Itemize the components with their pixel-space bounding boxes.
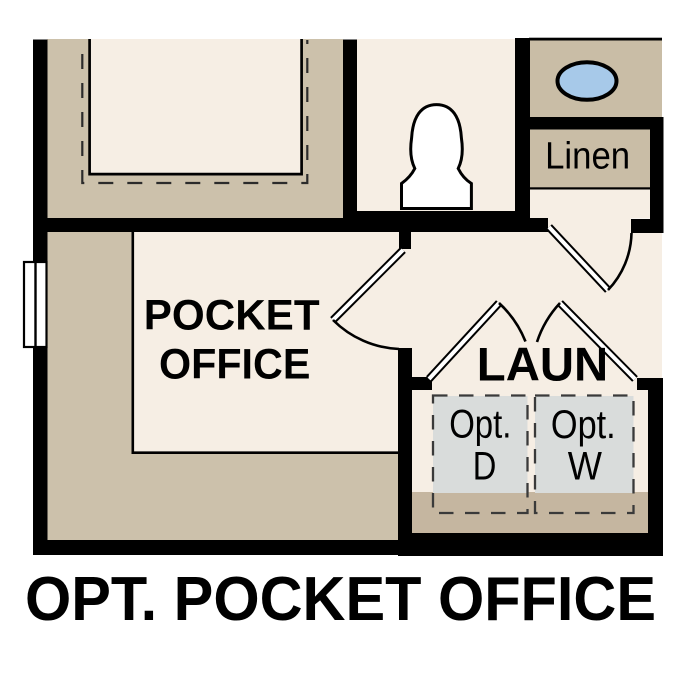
svg-text:OFFICE: OFFICE <box>159 341 310 388</box>
svg-text:LAUN: LAUN <box>477 339 608 392</box>
svg-text:Linen: Linen <box>545 135 630 177</box>
svg-text:Opt.: Opt. <box>449 403 511 447</box>
svg-text:D: D <box>473 445 497 489</box>
svg-text:Opt.: Opt. <box>551 403 616 447</box>
svg-text:W: W <box>568 445 602 489</box>
svg-text:OPT. POCKET OFFICE: OPT. POCKET OFFICE <box>25 565 656 634</box>
svg-text:POCKET: POCKET <box>144 292 320 339</box>
